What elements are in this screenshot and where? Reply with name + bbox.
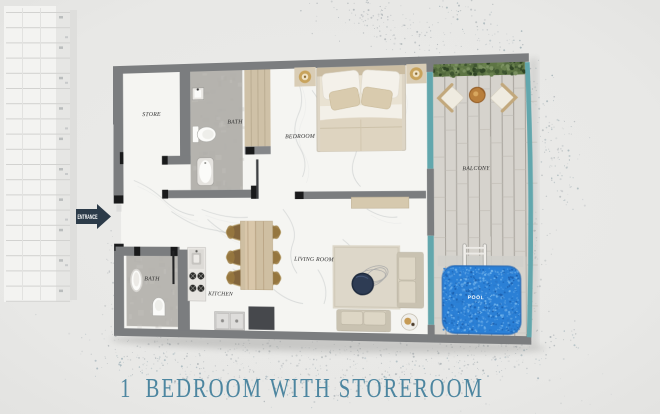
svg-text:POOL: POOL bbox=[468, 295, 485, 301]
svg-text:LIVING ROOM: LIVING ROOM bbox=[293, 257, 335, 264]
svg-text:BEDROOM: BEDROOM bbox=[285, 134, 316, 141]
svg-text:KITCHEN: KITCHEN bbox=[207, 291, 234, 297]
svg-text:BALCONY: BALCONY bbox=[462, 166, 490, 172]
svg-text:STORE: STORE bbox=[142, 112, 161, 118]
svg-text:BATH: BATH bbox=[227, 119, 243, 125]
svg-text:BATH: BATH bbox=[144, 276, 160, 282]
